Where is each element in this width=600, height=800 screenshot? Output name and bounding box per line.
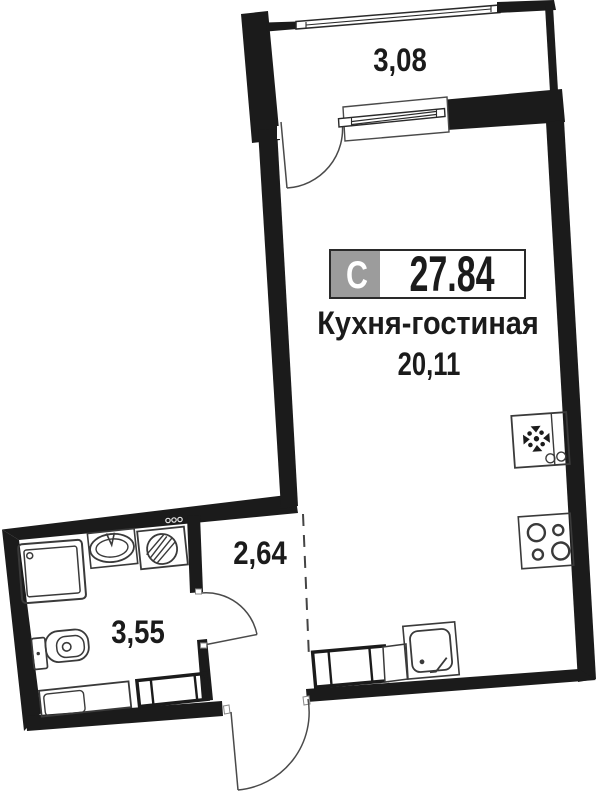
svg-text:С: С (346, 253, 368, 296)
svg-text:3,55: 3,55 (111, 615, 165, 650)
svg-text:Кухня-гостиная: Кухня-гостиная (317, 304, 538, 341)
svg-text:20,11: 20,11 (398, 347, 461, 382)
svg-text:27.84: 27.84 (409, 247, 494, 303)
svg-text:3,08: 3,08 (373, 43, 427, 78)
svg-text:2,64: 2,64 (233, 536, 287, 571)
